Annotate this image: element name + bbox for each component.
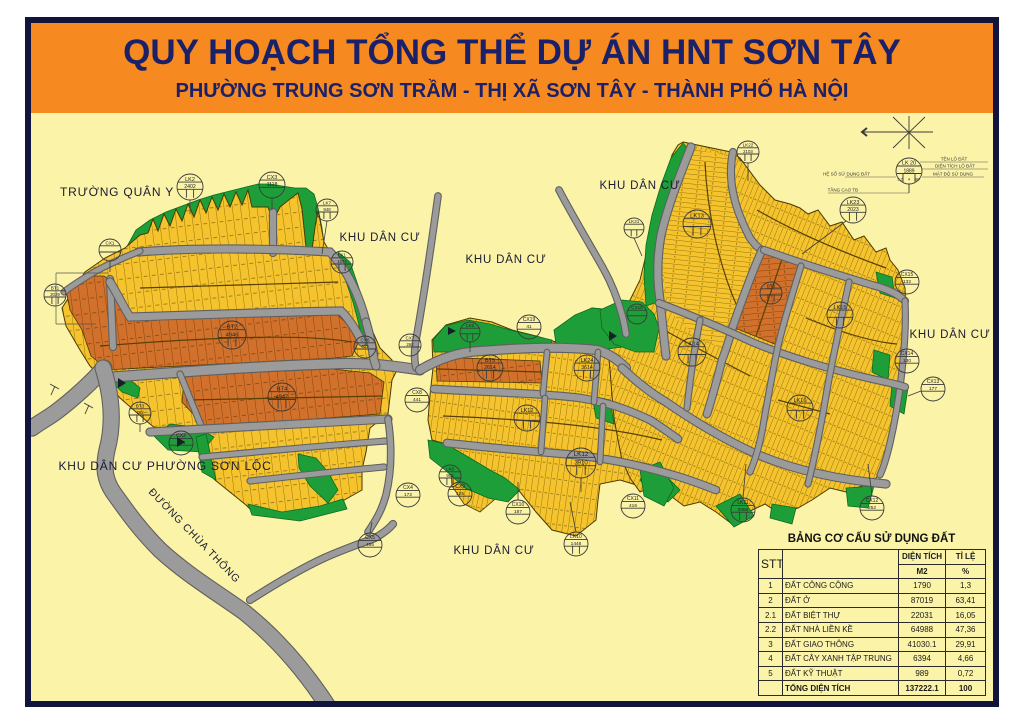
svg-text:CX7: CX7: [406, 336, 415, 341]
svg-text:CX19: CX19: [523, 317, 536, 323]
svg-text:CX8: CX8: [412, 390, 422, 396]
svg-text:KHU DÂN CƯ: KHU DÂN CƯ: [599, 179, 680, 192]
svg-text:BT1: BT1: [51, 286, 60, 291]
svg-text:905: 905: [446, 473, 454, 478]
svg-text:187: 187: [514, 509, 522, 515]
svg-text:3910: 3910: [574, 461, 588, 467]
svg-text:1889: 1889: [903, 169, 914, 175]
svg-text:KHU DÂN CƯ: KHU DÂN CƯ: [453, 544, 534, 557]
svg-text:TÊN LÔ ĐẤT: TÊN LÔ ĐẤT: [941, 155, 968, 162]
svg-text:LK16: LK16: [794, 398, 807, 404]
svg-text:CX1: CX1: [106, 241, 115, 246]
svg-text:416: 416: [629, 503, 637, 509]
svg-text:CX5: CX5: [365, 535, 375, 541]
svg-text:1448: 1448: [571, 541, 582, 547]
svg-text:4947: 4947: [276, 394, 288, 400]
svg-text:CX12: CX12: [866, 498, 879, 504]
svg-text:TRƯỜNG QUÂN Y: TRƯỜNG QUÂN Y: [60, 184, 174, 199]
svg-text:3056: 3056: [738, 507, 749, 513]
svg-text:80: 80: [915, 177, 920, 182]
svg-text:1574: 1574: [337, 259, 347, 264]
svg-text:HỆ SỐ SỬ DỤNG ĐẤT: HỆ SỐ SỬ DỤNG ĐẤT: [823, 170, 870, 177]
svg-text:3.2: 3.2: [897, 177, 903, 182]
svg-text:4946: 4946: [226, 332, 238, 338]
svg-text:KHU DÂN CƯ PHƯỜNG SƠN LỘC: KHU DÂN CƯ PHƯỜNG SƠN LỘC: [58, 458, 271, 473]
svg-text:LK1: LK1: [338, 253, 347, 258]
svg-text:BT3: BT3: [136, 404, 145, 409]
svg-text:CX13: CX13: [927, 379, 940, 385]
svg-text:172: 172: [404, 492, 412, 498]
svg-text:CX16: CX16: [631, 305, 643, 310]
svg-text:CX6: CX6: [361, 338, 370, 343]
svg-text:CX11: CX11: [627, 496, 639, 502]
svg-text:125: 125: [456, 491, 464, 497]
svg-text:1118: 1118: [267, 182, 278, 188]
svg-text:LK11: LK11: [737, 500, 749, 506]
svg-text:LK5: LK5: [466, 323, 475, 328]
svg-text:132: 132: [903, 279, 911, 285]
svg-text:LK24: LK24: [581, 358, 594, 364]
svg-text:LK12: LK12: [521, 408, 534, 414]
svg-text:441: 441: [413, 397, 421, 403]
svg-text:BT5: BT5: [485, 358, 495, 364]
svg-text:KHU DÂN CƯ: KHU DÂN CƯ: [909, 328, 990, 341]
svg-text:LK23: LK23: [847, 200, 860, 206]
svg-text:2614: 2614: [484, 365, 496, 371]
svg-text:DIỆN TÍCH LÔ ĐẤT: DIỆN TÍCH LÔ ĐẤT: [935, 162, 975, 169]
svg-text:623: 623: [361, 344, 369, 349]
svg-text:130: 130: [903, 358, 911, 364]
svg-text:BT4: BT4: [277, 387, 289, 393]
svg-text:252: 252: [868, 505, 876, 511]
svg-text:CX14: CX14: [901, 351, 914, 357]
svg-text:948: 948: [323, 207, 331, 212]
svg-text:2023: 2023: [847, 207, 859, 213]
svg-text:LK2: LK2: [185, 177, 195, 183]
svg-text:2402: 2402: [184, 184, 196, 190]
svg-text:CX4: CX4: [403, 485, 413, 491]
svg-text:2029: 2029: [50, 292, 60, 297]
svg-text:2103: 2103: [743, 149, 753, 154]
svg-text:782: 782: [136, 410, 144, 415]
svg-text:MẬT ĐỘ SỬ DỤNG: MẬT ĐỘ SỬ DỤNG: [933, 171, 974, 177]
svg-text:LK15: LK15: [834, 305, 847, 311]
svg-text:LK13: LK13: [690, 214, 704, 220]
svg-text:CX3: CX3: [267, 175, 278, 181]
svg-text:41: 41: [526, 324, 532, 330]
svg-text:KHU DÂN CƯ: KHU DÂN CƯ: [465, 253, 546, 266]
svg-text:CX15: CX15: [901, 272, 914, 278]
svg-text:LK8: LK8: [446, 467, 455, 472]
svg-text:4: 4: [908, 177, 911, 182]
svg-text:3614: 3614: [581, 365, 593, 371]
svg-text:LK10: LK10: [570, 534, 582, 540]
svg-text:KHU DÂN CƯ: KHU DÂN CƯ: [339, 231, 420, 244]
svg-text:TẦNG CAO TB: TẦNG CAO TB: [828, 187, 858, 193]
svg-text:BT2: BT2: [227, 325, 238, 331]
svg-text:CX10: CX10: [512, 502, 525, 508]
svg-text:262: 262: [406, 342, 414, 347]
svg-text:LK12: LK12: [574, 451, 589, 458]
svg-text:LK7: LK7: [323, 201, 332, 206]
svg-text:LK 20: LK 20: [902, 161, 916, 167]
svg-text:LK21: LK21: [629, 219, 640, 224]
svg-text:CX9: CX9: [455, 484, 465, 490]
svg-text:BT6: BT6: [767, 284, 776, 289]
svg-text:LK14: LK14: [685, 342, 699, 348]
svg-text:456: 456: [366, 542, 374, 548]
svg-text:LK22: LK22: [743, 143, 754, 148]
svg-text:177: 177: [929, 386, 937, 392]
